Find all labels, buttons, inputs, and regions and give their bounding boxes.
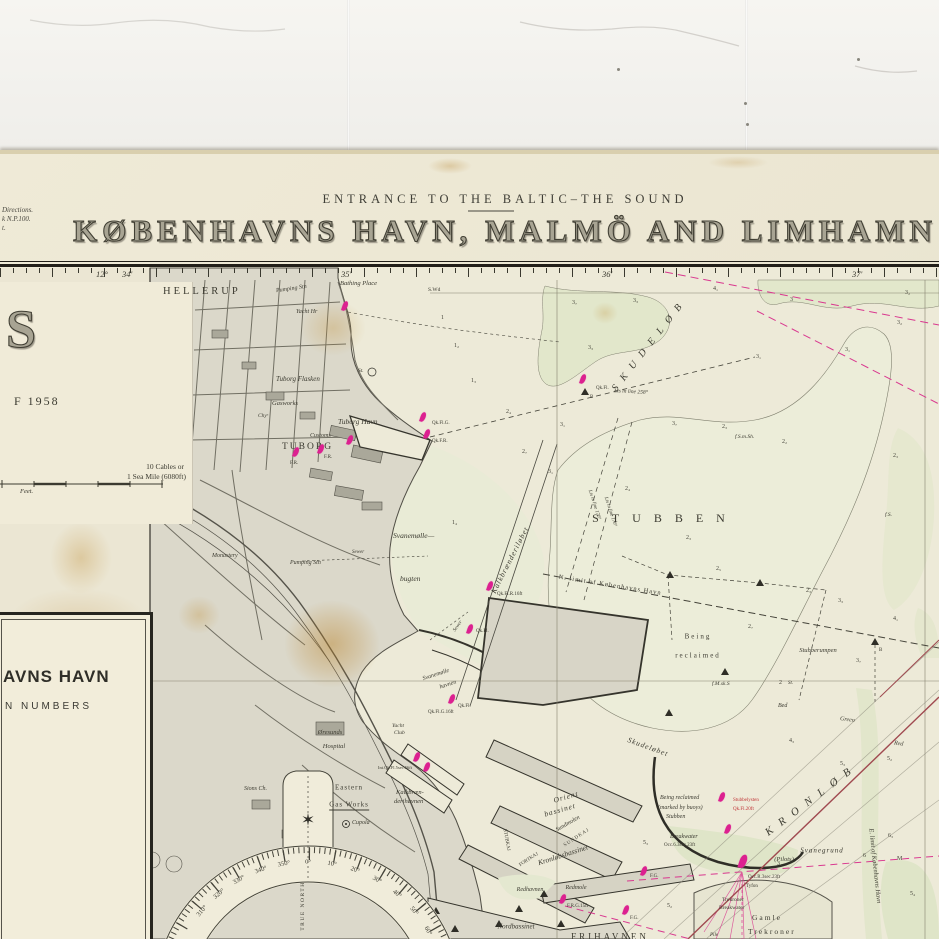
map-label-nordbassinet: Nordbassinet [497,924,534,931]
map-label-customs: Customs [310,433,331,439]
map-label-oresunds: Øresunds [318,730,343,737]
sounding: 3₂ [905,290,910,296]
sounding: 2₅ [716,566,721,572]
map-label-pile: Pile [710,933,718,938]
sounding: 3₇ [672,421,677,427]
map-label-stubberumpen: Stubberumpen [799,648,837,655]
map-label-qkfl-light: Qk.Fl. [476,629,489,634]
border-thin-line [0,261,939,262]
sounding: 3₁ [548,469,553,475]
map-label-beacon-b: B [879,648,882,653]
map-label-qkfl20-light: Qk.Fl.20ft [733,807,754,812]
map-label-occ63-light: Occ.6.3sec.23ft [664,843,695,848]
sounding: 2₃ [806,588,811,594]
sounding: 3₇ [572,300,577,306]
sounding: 2₃ [893,453,898,459]
sounding: 3₄ [777,861,782,867]
inset-big-letter: S [6,298,36,360]
compass-degree: 10° [327,860,337,868]
inset-title-block: S F 1958 10 Cables or 1 Sea Mile (6080ft… [0,282,193,524]
scale-label-cables: 10 Cables or [146,462,184,471]
map-label-hellerup: HELLERUP [163,287,241,298]
sounding: 3₇ [856,658,861,664]
map-label-fr-light: F.R. [324,455,332,460]
compass-degree: 0° [305,859,311,866]
inset-havn-title: AVNS HAVN [3,667,110,687]
sounding: 6 [863,853,866,859]
map-label-eastern: Eastern [335,785,363,792]
map-label-qkflg-light: Qk.Fl.G. [432,421,450,426]
margin-note-line: t. [2,224,6,232]
sounding: 5₂ [667,903,672,909]
map-label-monastery: Monastery [212,553,238,559]
sounding: 2₄ [506,409,511,415]
map-label-trekroner-bw: Trekroner [722,898,744,904]
border-ticks-major [0,268,939,277]
sounding: 1 [441,315,444,321]
map-label-bed: Bed [778,703,787,709]
sounding: 5₄ [910,891,915,897]
map-label-qkflg16-light: Qk.Fl.G.16ft [428,710,454,715]
map-label-reclaimed: reclaimed [675,653,721,660]
sounding: 3₁ [756,354,761,360]
border-label-37: 37' [852,269,862,279]
chart-supertitle: ENTRANCE TO THE BALTIC–THE SOUND [322,192,687,207]
inset-year: F 1958 [14,394,60,409]
supertitle-underline [468,210,514,212]
map-label-qkfl-light: Qk.Fl. [596,386,609,391]
map-label-trekroner: Trekroner [748,928,796,936]
map-label-bottom-quality: f.S.m.Sh. [735,435,754,441]
sounding: 5₃ [643,840,648,846]
map-label-fr-light: F.R. [290,461,298,466]
map-label-pumping-stn-2: Pumping Stn [290,560,321,566]
sounding: 1₄ [452,520,457,526]
sounding: 2 [779,680,782,686]
sounding: 2₂ [782,439,787,445]
map-label-svanemolle: Svanemølle— [393,532,434,540]
map-label-chimneys: Chyˢ [258,414,268,420]
map-label-svanegrund: Svanegrund [800,848,843,855]
border-thick-line [0,264,939,267]
map-label-redhavnen: Redhavnen [517,887,544,893]
map-label-stubben-small: Stubben [666,814,685,820]
sounding: 4₁ [893,616,898,622]
map-label-sewer: Sewer [352,550,364,555]
sounding: 3 [790,297,793,303]
margin-note-line: k N.P.100. [2,215,31,223]
map-label-trekroner-bw2: Breakwater [719,906,744,912]
map-label-kalkbraenderihavnen-1: Kalkbræn- [396,790,424,797]
map-label-breakwater: Breakwater [670,834,698,840]
inset-havn-subtitle: N NUMBERS [5,701,92,712]
map-label-being: Being [685,634,712,641]
map-label-gasworks: Gasworks [272,401,298,408]
sounding: 3₃ [588,345,593,351]
map-label-cupola: Cupola [352,820,370,826]
map-label-occr3-light: Occ.R.3sec.23ft [748,875,780,880]
map-label-yacht-hr: Yacht Hr [296,309,317,315]
map-label-beacon-b: B [590,395,593,400]
border-label-36: 36' [602,269,612,279]
map-label-st: St. [358,369,364,375]
map-label-stubbelysten: Stubbelysten [733,798,759,803]
map-label-qkfr-light: Qk.F.R. [432,439,448,444]
map-label-hospital: Hospital [323,744,345,751]
map-label-marked-by-buoys: (marked by buoys) [658,805,703,811]
sounding: 3₁ [845,347,850,353]
map-label-sions-church: Sions Ch. [244,786,267,792]
scale-feet-label: Feet. [20,488,33,495]
map-label-tuborg: TUBORG [282,443,333,453]
margin-note-line: Directions. [2,206,33,214]
sounding: 1₂ [454,343,459,349]
map-label-swd: S.Wd [428,288,440,294]
map-label-kalkbraenderihavnen-2: derihavnen [394,799,423,806]
map-label-int-light: Int.Qk.Fl.5sec.56ft [378,766,412,771]
map-label-frihavnen: FRIHAVNEN [571,933,649,939]
compass-star-icon: ✶ [301,812,315,829]
map-label-st: St. [788,681,793,686]
map-label-yacht: Yacht [392,724,404,730]
sounding: 3₂ [897,320,902,326]
map-label-gas-works: Gas Works [329,802,369,811]
chart-photo: Directions. k N.P.100. t. ENTRANCE TO TH… [0,0,939,939]
sounding: 2₄ [625,486,630,492]
map-label-red: Red [894,740,904,747]
sounding: 3₃ [838,598,843,604]
map-label-qkflr16-light: Qk.Fl.R.16ft [497,592,522,597]
map-label-qkfl-light: Qk.Fl. [458,704,471,709]
sounding: 4₁ [713,286,718,292]
sounding: 2₇ [748,624,753,630]
chart-title: KØBENHAVNS HAVN, MALMÖ AND LIMHAMN [73,213,937,249]
sounding: 3₁ [560,422,565,428]
sounding: 5₂ [887,756,892,762]
sounding: 1₃ [471,378,476,384]
map-label-fg-light: F.G. [630,916,639,921]
map-label-bathing-place: Bathing Place [340,281,377,288]
sounding: 5₃ [840,761,845,767]
map-label-tuborg-flasken: Tuborg Flasken [276,376,320,383]
map-label-gamle: Gamle [752,914,782,922]
sounding: 4₃ [789,738,794,744]
inset-havn-box: AVNS HAVN N NUMBERS [0,612,153,939]
sounding: M [897,856,902,862]
map-label-tuborg-havn: Tuborg Havn [338,418,378,426]
sounding: 2₇ [522,449,527,455]
sounding: 2₃ [686,535,691,541]
sounding: 2₃ [722,424,727,430]
map-label-club: Club [394,731,405,737]
border-label-34: 34' [122,269,132,279]
map-label-bugten: bugten [400,575,420,583]
border-label-35: 35' [341,269,351,279]
map-label-tyfon: Tyfon [746,884,758,889]
border-label-degrees: 12° [96,269,108,279]
map-label-fg-light: F.G. [650,874,659,879]
map-label-frg-light: F.R.G.15ft [567,904,588,909]
map-label-being-reclaimed-2: Being reclaimed [660,795,699,801]
compass-true-north-label: TRUE NORTH [300,881,306,930]
map-label-bottom-quality: f.S. [885,513,892,519]
map-label-redmole: Redmole [566,885,587,891]
map-label-bottom-quality: f.M.sk.S [712,682,730,688]
sounding: 3₃ [633,298,638,304]
sounding: 6₃ [888,833,893,839]
